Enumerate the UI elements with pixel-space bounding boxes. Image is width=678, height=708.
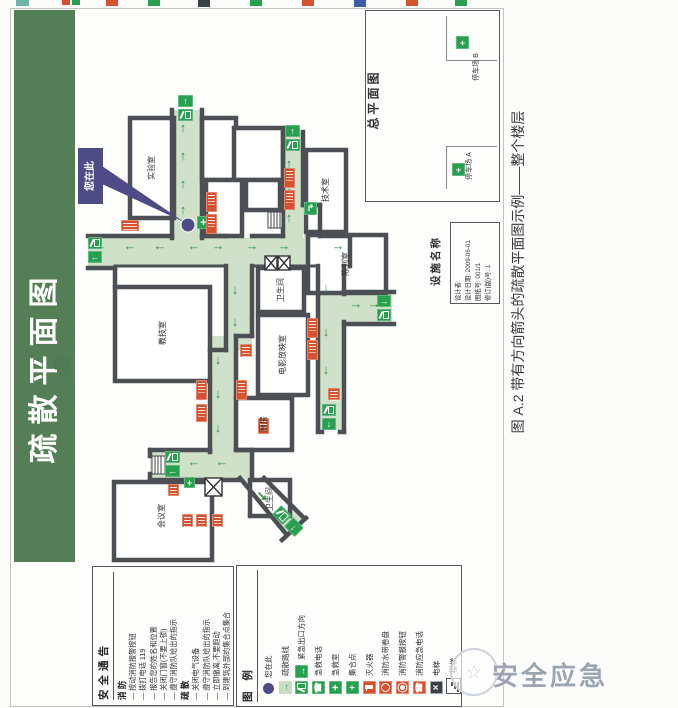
fire-equipment-sign [236, 380, 247, 400]
watermark-text: 安全应急 [492, 656, 608, 693]
route-arrow-icon: → [279, 681, 292, 694]
legend-item-assembly-point: + 集合点 [344, 570, 361, 702]
exit-arrow-sign: ↑ [178, 95, 193, 107]
fire-alarm-button-icon [396, 681, 409, 694]
notice-item: — 遵守消防队给出的指示 [169, 572, 179, 700]
arrow-left-icon: ← [152, 238, 168, 254]
fire-equipment-sign [328, 388, 340, 400]
room-label: 电影放映室 [277, 315, 289, 395]
fire-equipment-sign [196, 380, 207, 400]
exit-arrow-sign: ↓ [322, 418, 336, 430]
fire-section-title: 消 防 [116, 572, 128, 700]
legend-label: 疏散路线 [280, 646, 291, 676]
legend-item-alarm-button: 消防警报按钮 [394, 570, 411, 702]
evac-section-title: 疏 散 [179, 572, 191, 700]
legend-label: 消防警报按钮 [397, 631, 408, 676]
notice-item: — 按动消防报警按钮 [128, 572, 138, 700]
arrow-down-icon: ↓ [210, 420, 226, 436]
assembly-point-icon: + [346, 681, 359, 694]
room-label: 卫生间 [264, 464, 276, 534]
fire-equipment-sign [206, 192, 217, 212]
elevator-icon: × [430, 681, 443, 694]
notice-item: — 关闭门窗(不要上锁) [159, 572, 169, 700]
arrow-down-icon: ↓ [327, 419, 332, 429]
exit-arrow-sign: ↑ [285, 125, 300, 137]
arrow-right-icon: → [276, 238, 292, 254]
legend-label: 消防水带卷盘 [380, 631, 391, 676]
parking-a-label: 停车场 A [465, 136, 475, 196]
phone-icon: ☎ [414, 682, 425, 693]
x-icon: × [431, 685, 442, 691]
arrow-down-icon: ↓ [289, 522, 299, 532]
room-label: 技术室 [320, 155, 332, 225]
you-are-here-callout: 您在此 [78, 148, 103, 204]
phone-icon: ☎ [313, 682, 324, 693]
notice-item: — 到建筑外部的集合点集合 [222, 572, 232, 700]
exit-sign [88, 237, 102, 249]
arrow-right-icon: → [210, 238, 226, 254]
exit-sign [178, 109, 193, 121]
you-are-here-dot-icon [263, 683, 274, 694]
fire-equipment-sign [212, 514, 223, 527]
exit-arrow-sign: ← [88, 251, 102, 263]
room-label: 教技室 [157, 298, 169, 368]
you-are-here-label: 您在此 [78, 148, 103, 204]
legend-box: 图 例 您在此 → 疏散路线 → 紧急出口方向 ☎ 急救电话 + 急救室 [236, 565, 462, 707]
fire-equipment-sign [182, 514, 193, 527]
figure-caption: 图 A.2 带有方向箭头的疏散平面图示例——整个楼层 [505, 52, 531, 492]
room-label: 陈列室 [340, 229, 352, 299]
legend-item-exit-direction: → 紧急出口方向 [294, 570, 311, 702]
arrow-down-icon: ↓ [318, 324, 334, 340]
legend-title: 图 例 [240, 570, 258, 702]
arrow-up-icon: ↑ [290, 126, 295, 136]
watermark-logo: ☆ [450, 648, 498, 696]
fire-equipment-sign [168, 484, 179, 496]
turn-arrow-icon: ↱ [307, 203, 315, 214]
assembly-glyph: + [456, 165, 461, 175]
legend-label: 急救室 [330, 654, 341, 677]
safety-notice-title: 安全通告 [96, 572, 114, 700]
legend-item-you-are-here: 您在此 [260, 570, 277, 702]
legend-label: 您在此 [263, 656, 274, 679]
exit-sign [377, 309, 391, 321]
exit-sign [285, 139, 300, 151]
fire-equipment-sign [196, 404, 207, 422]
exit-arrow-icon: → [295, 665, 308, 678]
legend-item-fire-phone: ☎ 消防应急电话 [411, 570, 428, 702]
arrow-left-icon: ← [91, 252, 100, 262]
scanned-evacuation-plan-page: 疏散平面图 1层 [0, 0, 678, 708]
room-label: 厨房 [258, 389, 270, 459]
legend-label: 电梯 [431, 661, 442, 676]
arrow-right-icon: → [280, 683, 290, 692]
assembly-point-icon: + [456, 36, 469, 49]
legend-item-elevator: × 电梯 [428, 570, 445, 702]
fire-equipment-sign [284, 168, 295, 188]
safety-notice-box: 安全通告 消 防 — 按动消防报警按钮 — 拨打电话 119 — 报告您的姓名和… [92, 566, 234, 706]
first-aid-phone-icon: ☎ [312, 681, 325, 694]
facility-name-label: 设施名称 [429, 221, 443, 301]
fire-equipment-sign [196, 514, 207, 527]
arrow-down-icon: ↓ [210, 386, 226, 402]
fire-equipment-sign [284, 190, 295, 210]
fire-equipment-sign [240, 344, 252, 357]
arrow-up-icon: ↑ [183, 96, 188, 106]
arrow-down-icon: ↓ [227, 282, 243, 298]
you-are-here-dot [181, 218, 195, 232]
arrow-left-icon: ← [186, 238, 202, 254]
title-block: 设计者: 设计日期: 2009-06-01 图纸号: 001/1 修订(版)号:… [450, 222, 500, 304]
exit-sign [322, 404, 336, 416]
arrow-down-icon: ↓ [318, 280, 334, 296]
assembly-glyph: + [347, 685, 357, 690]
exit-sign-icon [295, 681, 308, 694]
notice-item: — 拨打电话 119 [138, 572, 148, 700]
notice-item: — 遵守消防队给出的指示 [202, 572, 212, 700]
exit-sign [165, 451, 180, 463]
arrow-up-icon: ↑ [175, 202, 191, 218]
titleblock-line: 设计者: [454, 225, 464, 301]
legend-item-extinguisher: 灭火器 [361, 570, 378, 702]
arrow-left-icon: ← [214, 454, 230, 470]
legend-item-first-aid-phone: ☎ 急救电话 [310, 570, 327, 702]
room-label: 实验室 [146, 133, 158, 203]
parking-b-label: 停车场 B [472, 37, 482, 97]
arrow-left-icon: ← [168, 466, 177, 476]
fire-equipment-sign [121, 220, 139, 231]
legend-item-route: → 疏散路线 [277, 570, 294, 702]
first-aid-cross-icon: + [329, 681, 342, 694]
room-label: 会议室 [156, 481, 168, 551]
arrow-right-icon: → [380, 296, 389, 306]
titleblock-line: 修订(版)号: 1 [484, 225, 494, 301]
arrow-left-icon: ← [186, 454, 202, 470]
legend-label: 急救电话 [313, 646, 324, 676]
arrow-right-icon: → [244, 238, 260, 254]
legend-label: 消防应急电话 [414, 631, 425, 676]
turn-arrow-sign: ↱ [304, 202, 317, 215]
arrow-down-icon: ↓ [210, 352, 226, 368]
arrow-left-icon: ← [122, 238, 138, 254]
legend-item-hose-reel: 消防水带卷盘 [378, 570, 395, 702]
assembly-glyph: + [460, 38, 465, 48]
arrow-down-icon: ↓ [227, 314, 243, 330]
cross-icon: + [187, 478, 192, 488]
notice-item: — 立即撤离,不要跑动 [212, 572, 222, 700]
exit-arrow-sign: ← [165, 465, 180, 477]
arrow-up-icon: ↑ [175, 148, 191, 164]
assembly-point-icon: + [452, 163, 465, 176]
notice-item: — 关闭电气设备 [191, 572, 201, 700]
fire-equipment-sign [307, 318, 318, 338]
exit-arrow-sign: → [377, 295, 391, 307]
notice-item: — 报告您的姓名和位置 [149, 572, 159, 700]
arrow-down-icon: ↓ [318, 362, 334, 378]
site-map-title: 总平面图 [367, 45, 382, 155]
legend-label: 灭火器 [364, 654, 375, 677]
fire-emergency-phone-icon: ☎ [413, 681, 426, 694]
arrow-up-icon: ↑ [175, 120, 191, 136]
fire-extinguisher-icon [363, 681, 376, 694]
legend-item-first-aid-room: + 急救室 [327, 570, 344, 702]
arrow-up-icon: ↑ [175, 176, 191, 192]
fire-equipment-sign [206, 214, 217, 234]
fire-equipment-sign [307, 340, 318, 360]
first-aid-sign: + [184, 477, 195, 488]
cross-icon: + [330, 684, 342, 690]
legend-label: 紧急出口方向 [296, 615, 307, 660]
star-icon: ☆ [466, 662, 482, 683]
legend-label: 集合点 [347, 654, 358, 677]
arrow-right-icon: → [297, 667, 307, 676]
arrow-up-icon: ↑ [281, 210, 297, 226]
fire-hose-reel-icon [379, 681, 392, 694]
titleblock-line: 图纸号: 001/1 [474, 225, 484, 301]
titleblock-line: 设计日期: 2009-06-01 [464, 225, 474, 301]
